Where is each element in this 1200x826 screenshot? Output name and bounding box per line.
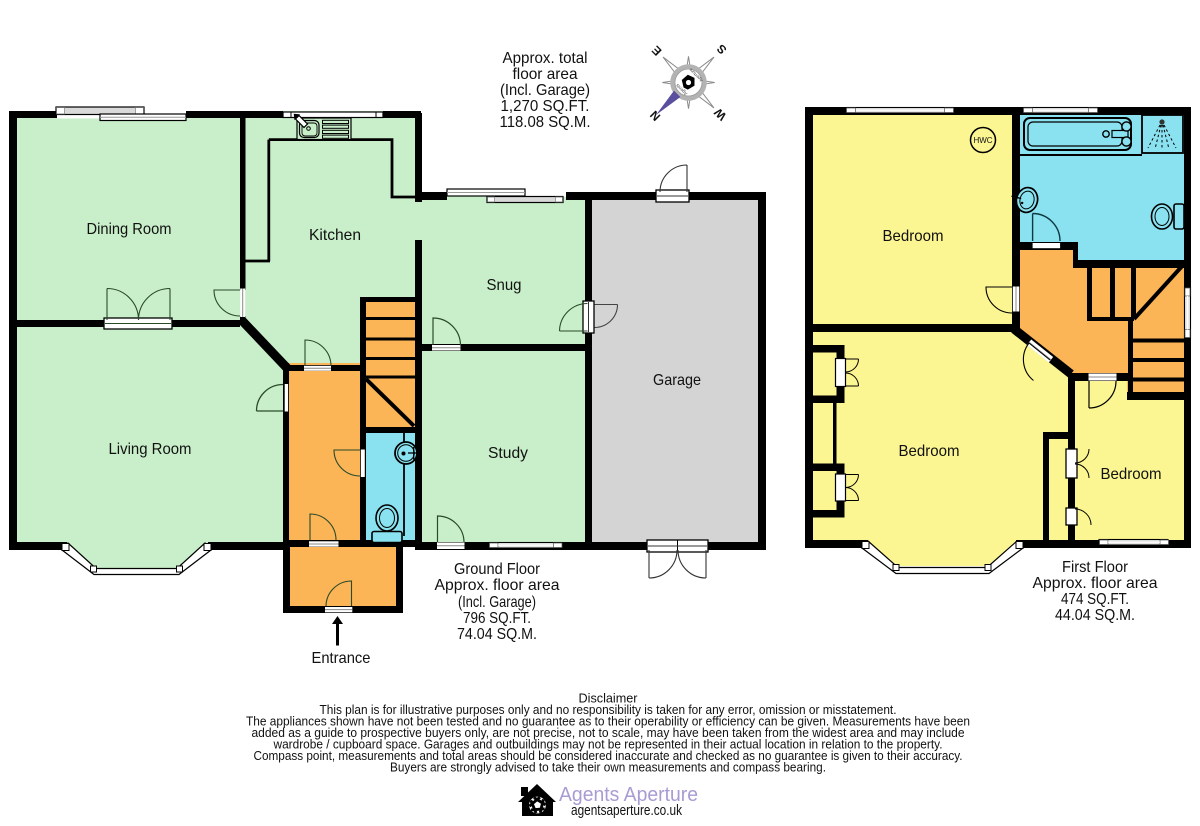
svg-text:118.08 SQ.M.: 118.08 SQ.M. [500,114,591,131]
svg-text:(Incl. Garage): (Incl. Garage) [500,82,590,99]
svg-text:44.04 SQ.M.: 44.04 SQ.M. [1055,607,1135,624]
svg-text:floor area: floor area [513,66,578,83]
svg-text:74.04 SQ.M.: 74.04 SQ.M. [457,626,537,643]
svg-text:HWC: HWC [973,136,992,145]
svg-text:Study: Study [488,445,528,462]
svg-text:Living Room: Living Room [109,441,192,458]
svg-text:(Incl. Garage): (Incl. Garage) [458,594,536,611]
svg-text:Bedroom: Bedroom [883,228,944,245]
svg-text:Kitchen: Kitchen [309,227,361,244]
svg-text:Ground Floor: Ground Floor [454,561,541,578]
svg-text:474 SQ.FT.: 474 SQ.FT. [1061,591,1129,608]
svg-text:Bedroom: Bedroom [1101,466,1162,483]
svg-text:Snug: Snug [487,277,522,294]
svg-text:Buyers are strongly advised to: Buyers are strongly advised to take thei… [390,760,826,775]
svg-text:Dining Room: Dining Room [87,221,172,238]
svg-text:agentsaperture.co.uk: agentsaperture.co.uk [571,802,682,819]
svg-text:Approx. floor area: Approx. floor area [435,577,560,594]
svg-text:796 SQ.FT.: 796 SQ.FT. [463,610,531,627]
svg-text:1,270 SQ.FT.: 1,270 SQ.FT. [501,98,590,115]
svg-text:Approx. floor area: Approx. floor area [1033,575,1158,592]
svg-text:Entrance: Entrance [312,650,371,667]
svg-text:Bedroom: Bedroom [899,443,960,460]
svg-text:Approx. total: Approx. total [503,50,588,67]
svg-text:First Floor: First Floor [1062,559,1129,576]
svg-text:Garage: Garage [653,372,701,389]
